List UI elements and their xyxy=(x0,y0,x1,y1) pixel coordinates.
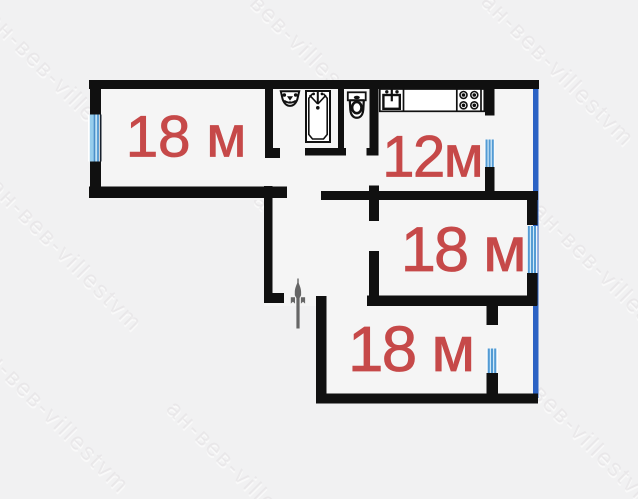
svg-text:12м: 12м xyxy=(382,125,482,190)
svg-text:18 м: 18 м xyxy=(348,314,474,385)
svg-text:18 м: 18 м xyxy=(126,105,246,170)
svg-text:18 м: 18 м xyxy=(401,215,525,285)
